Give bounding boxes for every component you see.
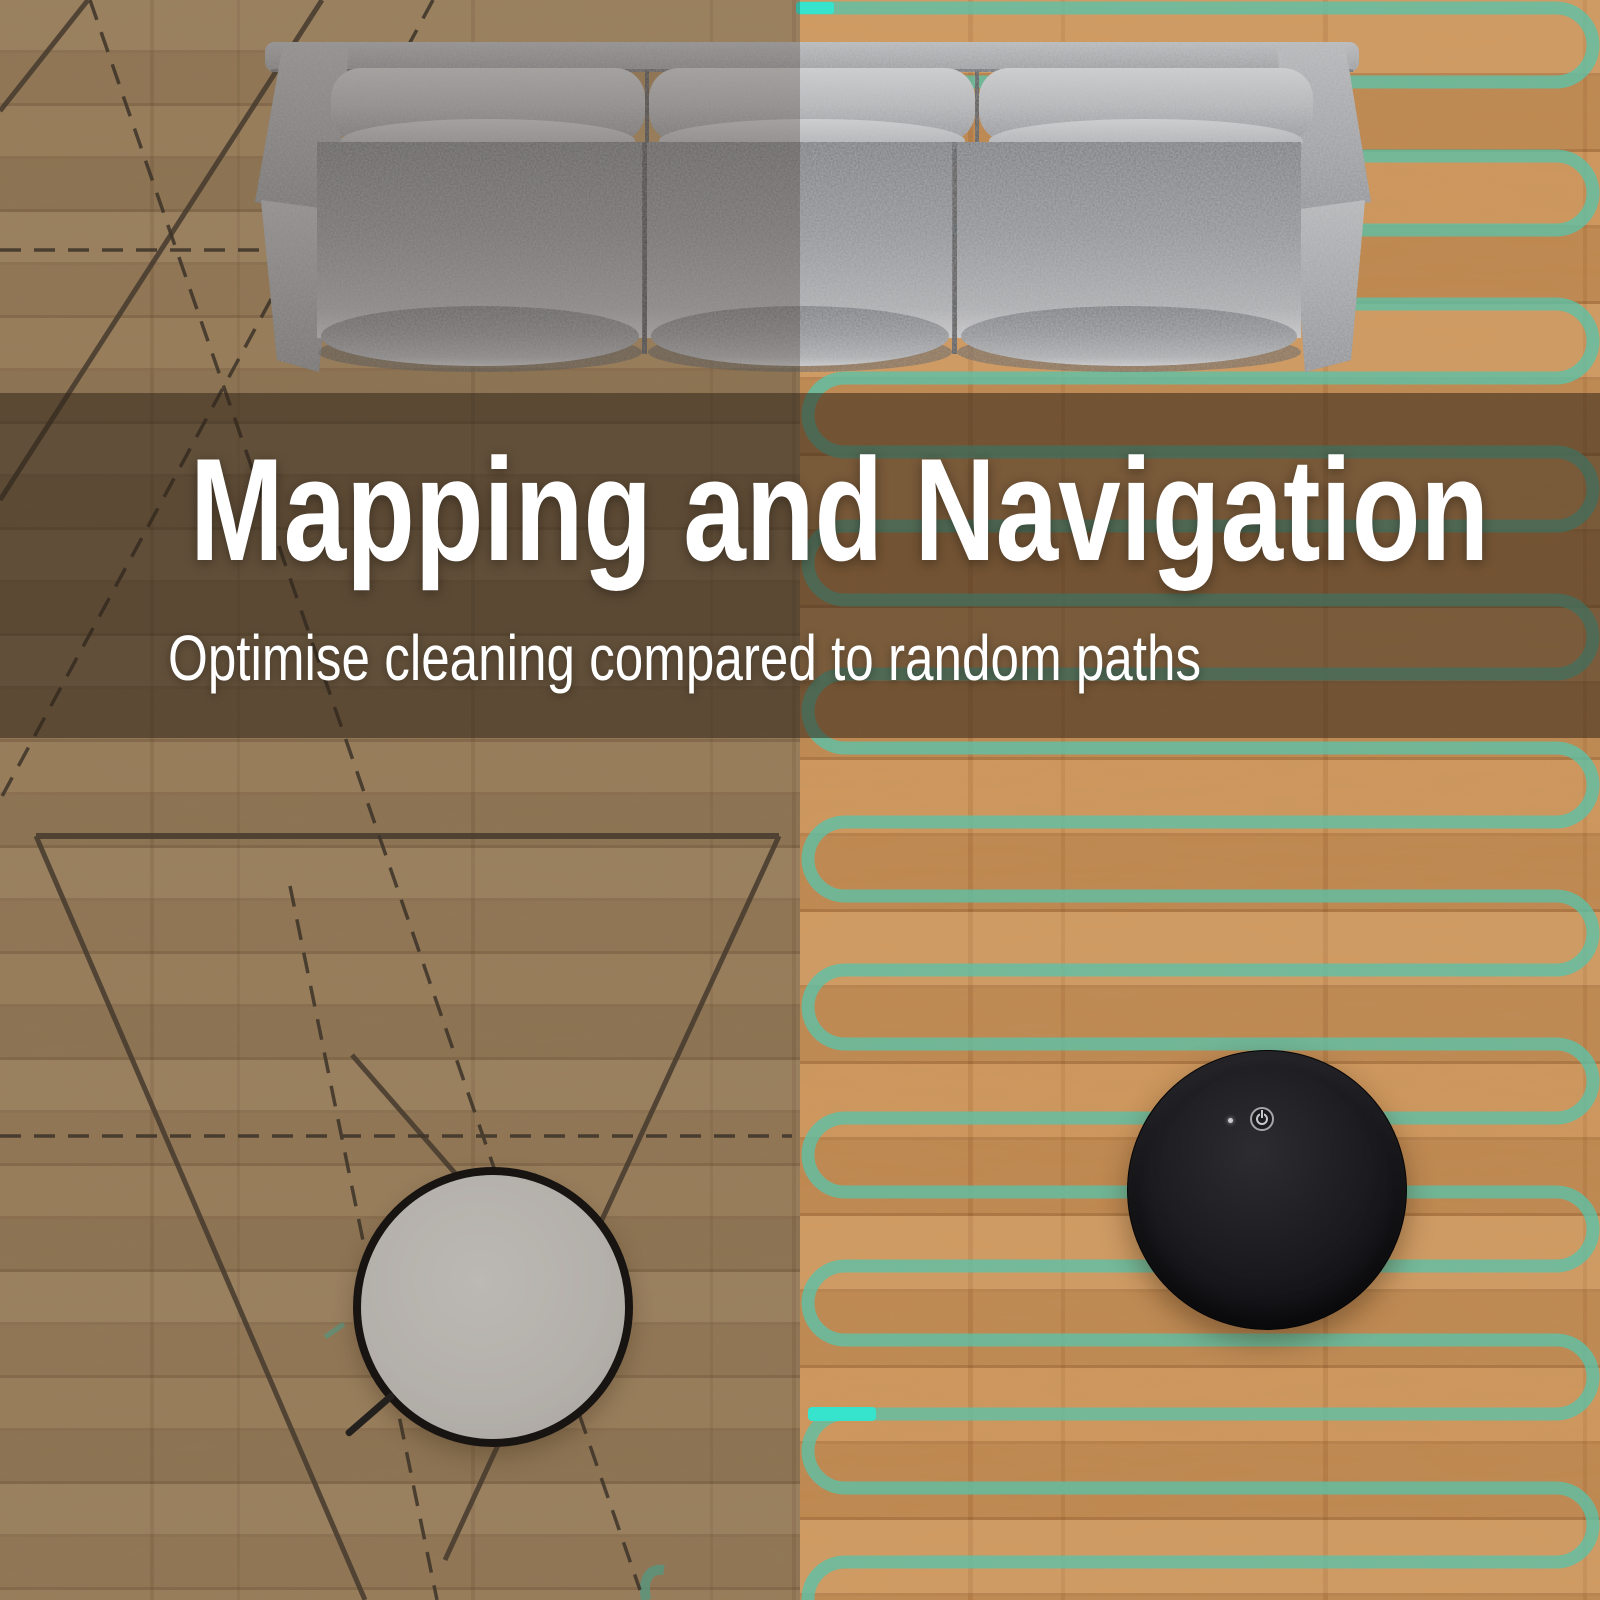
power-icon — [1256, 1113, 1268, 1125]
smart-robot-vacuum — [1127, 1050, 1407, 1330]
power-button — [1250, 1107, 1274, 1131]
promo-image: Mapping and Navigation Optimise cleaning… — [0, 0, 1600, 1600]
page-title: Mapping and Navigation — [190, 437, 1489, 583]
led-indicator-icon — [1228, 1118, 1233, 1123]
page-subtitle: Optimise cleaning compared to random pat… — [168, 626, 1201, 690]
left-half-shade — [0, 0, 800, 1600]
